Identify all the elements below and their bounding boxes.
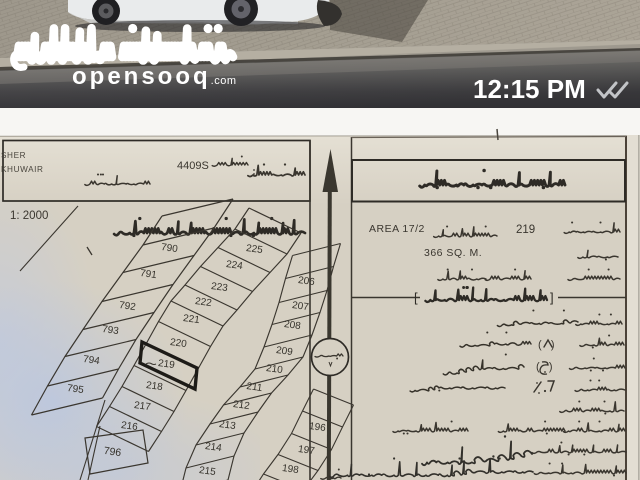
svg-text:791: 791 (139, 268, 157, 281)
svg-text:207: 207 (291, 300, 309, 313)
svg-text:209: 209 (275, 345, 293, 358)
svg-text:198: 198 (281, 463, 299, 476)
svg-text:( ): ( ) (536, 361, 553, 373)
svg-text:210: 210 (265, 363, 283, 376)
svg-text:4409S: 4409S (177, 160, 209, 172)
svg-text:216: 216 (120, 420, 138, 433)
svg-text:223: 223 (210, 281, 228, 294)
svg-text:222: 222 (194, 296, 212, 309)
svg-text:[: [ (414, 290, 418, 305)
svg-text:790: 790 (160, 242, 178, 255)
svg-text:AREA 17/2: AREA 17/2 (369, 223, 425, 235)
svg-text:217: 217 (133, 400, 151, 413)
svg-text:206: 206 (297, 275, 315, 288)
svg-text:795: 795 (66, 383, 84, 396)
svg-text:366 SQ. M.: 366 SQ. M. (424, 247, 482, 259)
svg-text:221: 221 (182, 313, 200, 326)
svg-text:793: 793 (101, 324, 119, 337)
svg-text:]: ] (550, 290, 554, 305)
svg-text:208: 208 (283, 319, 301, 332)
svg-text:219: 219 (516, 224, 535, 236)
svg-text:214: 214 (204, 441, 222, 454)
svg-text:1: 2000: 1: 2000 (10, 210, 48, 222)
svg-text:218: 218 (145, 380, 163, 393)
svg-text:211: 211 (246, 381, 264, 394)
svg-text:219: 219 (157, 358, 175, 371)
svg-text:796: 796 (103, 445, 122, 459)
svg-text:225: 225 (245, 243, 263, 256)
svg-text:212: 212 (232, 399, 250, 412)
svg-text:215: 215 (198, 465, 216, 478)
svg-text:KHUWAIR: KHUWAIR (1, 165, 44, 174)
svg-text:196: 196 (308, 421, 326, 434)
svg-text:SHER: SHER (1, 151, 26, 160)
svg-text:213: 213 (218, 419, 236, 432)
svg-text:( ): ( ) (538, 339, 555, 351)
svg-text:224: 224 (225, 259, 243, 272)
svg-text:220: 220 (169, 337, 187, 350)
svg-text:197: 197 (297, 444, 315, 457)
svg-text:792: 792 (118, 300, 136, 313)
svg-text:794: 794 (82, 354, 100, 367)
